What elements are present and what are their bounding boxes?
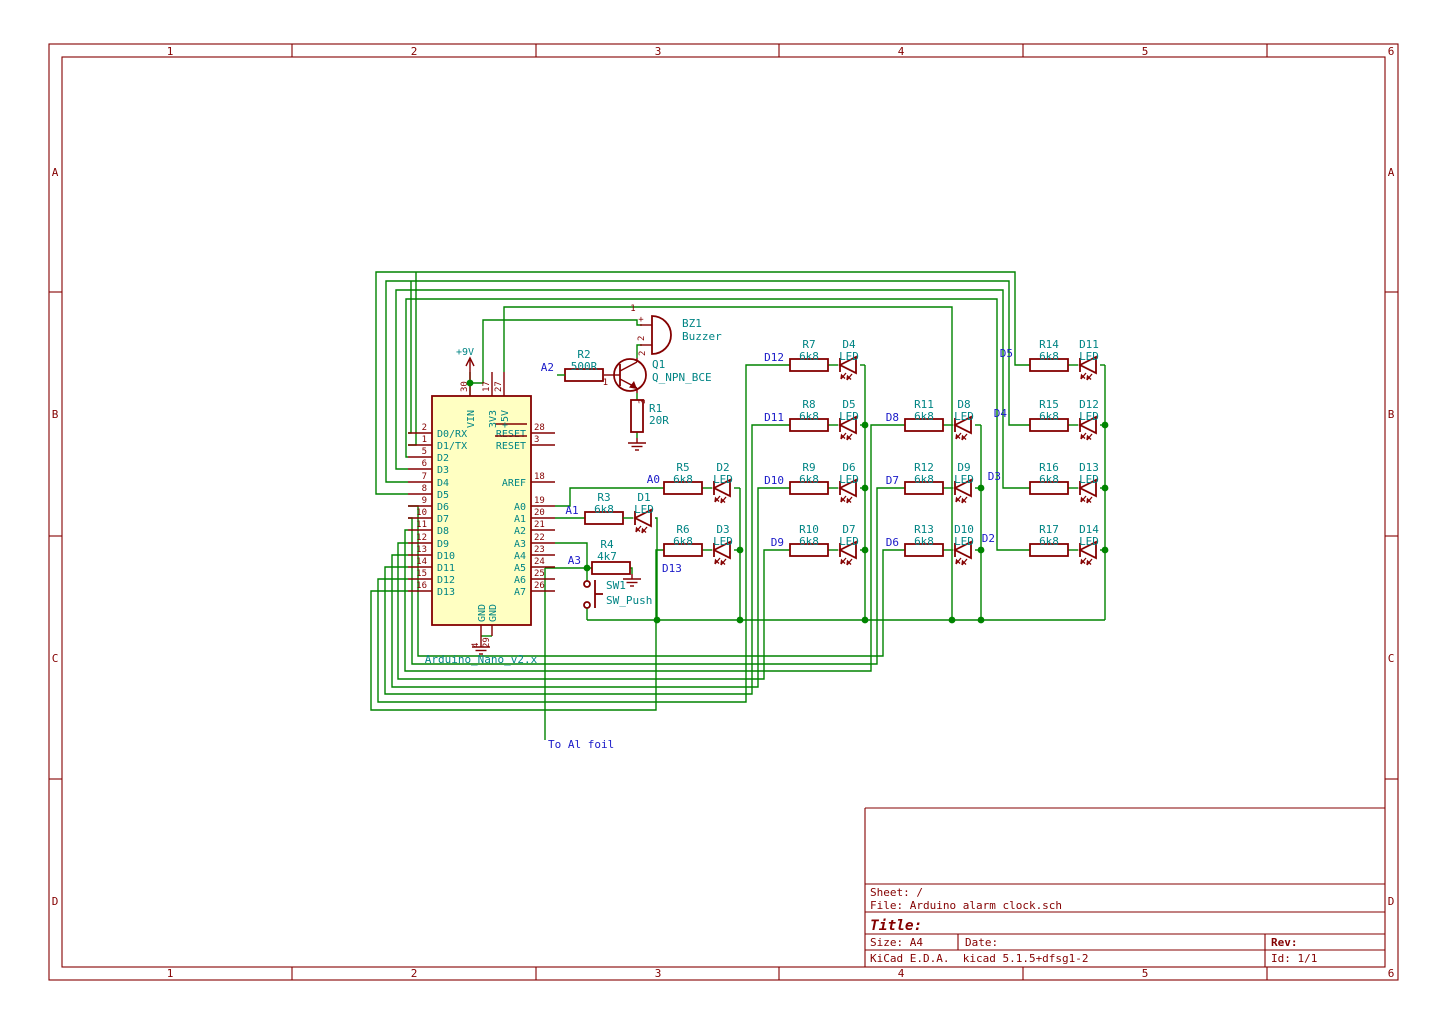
- matrix-cell-c1-r1[interactable]: R56k8D2LEDA0: [647, 461, 740, 503]
- component-value: 20R: [649, 414, 669, 427]
- pin-name: D10: [437, 551, 455, 562]
- pin-number: 18: [534, 472, 545, 482]
- frame-row-label: A: [1388, 166, 1395, 179]
- junction-dot: [978, 617, 985, 624]
- component-value: LED: [839, 350, 859, 363]
- frame-column-label: 3: [655, 45, 662, 58]
- pin-number: 21: [534, 520, 545, 530]
- pin-number: 1: [630, 304, 635, 314]
- matrix-cell-c4-r3[interactable]: R166k8D13LEDD3: [988, 461, 1105, 503]
- component-value: LED: [839, 473, 859, 486]
- schematic-sheet: 112233445566AABBCCDDSheet: /File: Arduin…: [0, 0, 1447, 1024]
- power-9v-symbol[interactable]: +9V: [456, 347, 474, 372]
- component-value: SW_Push: [606, 594, 652, 607]
- frame-column-label: 3: [655, 967, 662, 980]
- matrix-cell-c1-r2[interactable]: R66k8D3LEDD13: [662, 523, 740, 575]
- title-block: Sheet: /File: Arduino alarm clock.schTit…: [865, 808, 1385, 967]
- component-value: LED: [1079, 350, 1099, 363]
- net-label: A1: [565, 504, 578, 517]
- junction-dot: [737, 617, 744, 624]
- arduino-value: Arduino_Nano_v2.x: [425, 653, 538, 666]
- matrix-cell-c2-r4[interactable]: R106k8D7LEDD9: [771, 523, 865, 565]
- frame-column-label: 6: [1388, 45, 1395, 58]
- transistor-symbol[interactable]: 123Q1Q_NPN_BCE: [603, 351, 712, 404]
- buzzer-symbol[interactable]: 1+2BZ1Buzzer: [630, 304, 722, 354]
- pin-name: A2: [514, 526, 526, 537]
- component-value: LED: [1079, 473, 1099, 486]
- titleblock-size: Size: A4: [870, 936, 923, 949]
- pin-number: 8: [422, 484, 427, 494]
- frame-row-label: B: [52, 408, 59, 421]
- component-value: LED: [713, 473, 733, 486]
- pin-name: A0: [514, 502, 526, 513]
- frame-row-label: C: [52, 652, 59, 665]
- matrix-cell-c4-r4[interactable]: R176k8D14LEDD2: [982, 523, 1105, 565]
- component-value: 6k8: [1039, 410, 1059, 423]
- pin-number: 15: [416, 569, 427, 579]
- net-label: A0: [647, 473, 660, 486]
- pin-number: 6: [422, 459, 427, 469]
- component-value: 6k8: [673, 535, 693, 548]
- resistor-r4-switch[interactable]: R44k7A3SW1SW_Push: [568, 538, 653, 608]
- matrix-cell-c3-r1[interactable]: R116k8D8LEDD8: [886, 398, 981, 440]
- wire[interactable]: [408, 281, 411, 433]
- pin-number: 10: [416, 508, 427, 518]
- matrix-cell-c2-r3[interactable]: R96k8D6LEDD10: [764, 461, 865, 503]
- pin-number: 27: [494, 381, 504, 392]
- component-value: 6k8: [914, 410, 934, 423]
- pin-number: 14: [416, 557, 427, 567]
- junctions: [467, 380, 1109, 624]
- titleblock-sheet: Sheet: /: [870, 886, 923, 899]
- pin-name: A5: [514, 563, 526, 574]
- titleblock-rev: Rev:: [1271, 936, 1298, 949]
- pin-number: 7: [422, 472, 427, 482]
- component-value: LED: [954, 410, 974, 423]
- arduino-symbol[interactable]: 2D0/RX1D1/TX5D26D37D48D59D610D711D812D91…: [408, 372, 555, 666]
- junction-dot: [978, 485, 985, 492]
- matrix-cell-c3-r3[interactable]: R136k8D10LEDD6: [886, 523, 981, 565]
- pin-name: GND: [488, 604, 499, 622]
- net-label: D2: [982, 532, 995, 545]
- frame-column-label: 6: [1388, 967, 1395, 980]
- frame-row-label: D: [1388, 895, 1395, 908]
- frame-column-label: 1: [167, 45, 174, 58]
- pin-number: 20: [534, 508, 545, 518]
- pin-name: D8: [437, 526, 449, 537]
- pin-name: D2: [437, 453, 449, 464]
- net-label: A2: [541, 361, 554, 374]
- net-label-foil: To Al foil: [548, 738, 614, 751]
- component-value: 6k8: [594, 503, 614, 516]
- pin-name: D11: [437, 563, 455, 574]
- pin-number: 23: [534, 545, 545, 555]
- gnd-symbol[interactable]: [628, 438, 646, 450]
- matrix-cell-c2-r1[interactable]: R76k8D4LEDD12: [764, 338, 865, 380]
- pin-name: D0/RX: [437, 429, 467, 440]
- component-value: LED: [1079, 535, 1099, 548]
- resistor-r2[interactable]: R2500RA2: [541, 348, 603, 381]
- titleblock-id: Id: 1/1: [1271, 952, 1317, 965]
- junction-dot: [737, 547, 744, 554]
- pin-number: 17: [482, 381, 492, 392]
- pin-name: RESET: [496, 441, 526, 452]
- net-label: D11: [764, 411, 784, 424]
- component-value: Q_NPN_BCE: [652, 371, 712, 384]
- pin-name: D3: [437, 465, 449, 476]
- component-value: 6k8: [914, 473, 934, 486]
- titleblock-file: File: Arduino alarm clock.sch: [870, 899, 1062, 912]
- junction-dot: [862, 485, 869, 492]
- junction-dot: [862, 547, 869, 554]
- pin-name: 3V3: [488, 410, 499, 428]
- frame-column-label: 2: [411, 45, 418, 58]
- junction-dot: [1102, 422, 1109, 429]
- net-label: D13: [662, 562, 682, 575]
- titleblock-title: Title:: [870, 918, 922, 934]
- frame-column-label: 4: [898, 967, 905, 980]
- pin-name: +5V: [500, 410, 511, 428]
- pin-number: 16: [416, 581, 427, 591]
- pin-number: 22: [534, 533, 545, 543]
- component-value: LED: [1079, 410, 1099, 423]
- component-value: 6k8: [799, 410, 819, 423]
- pin-number: 26: [534, 581, 545, 591]
- pin-number: 19: [534, 496, 545, 506]
- pin-number: 9: [422, 496, 427, 506]
- net-label: D9: [771, 536, 784, 549]
- net-label: D12: [764, 351, 784, 364]
- sheet-frame: 112233445566AABBCCDD: [49, 44, 1398, 980]
- pin-number: 3: [534, 435, 539, 445]
- pin-name: D7: [437, 514, 449, 525]
- component-ref: SW1: [606, 579, 626, 592]
- pin-name: RESET: [496, 429, 526, 440]
- component-value: LED: [634, 503, 654, 516]
- junction-dot: [862, 617, 869, 624]
- junction-dot: [862, 422, 869, 429]
- pin-number: 1: [422, 435, 427, 445]
- component-value: LED: [954, 473, 974, 486]
- component-value: LED: [839, 535, 859, 548]
- net-label: D10: [764, 474, 784, 487]
- pin-name: A6: [514, 575, 526, 586]
- component-value: LED: [713, 535, 733, 548]
- switch-contact: [584, 602, 590, 608]
- net-label: D6: [886, 536, 899, 549]
- titleblock-generator: KiCad E.D.A. kicad 5.1.5+dfsg1-2: [870, 952, 1089, 965]
- frame-column-label: 2: [411, 967, 418, 980]
- frame-row-label: D: [52, 895, 59, 908]
- resistor-body[interactable]: [592, 562, 630, 574]
- net-label: D8: [886, 411, 899, 424]
- pin-number: 25: [534, 569, 545, 579]
- matrix-cell-c4-r2[interactable]: R156k8D12LEDD4: [994, 398, 1105, 440]
- foil-label[interactable]: To Al foil: [548, 738, 614, 751]
- frame-column-label: 5: [1142, 967, 1149, 980]
- matrix-cell-c2-r2[interactable]: R86k8D5LEDD11: [764, 398, 865, 440]
- pin-name: AREF: [502, 478, 526, 489]
- wire[interactable]: [470, 320, 642, 383]
- power-9v-label: +9V: [456, 347, 474, 358]
- pin-number: 11: [416, 520, 427, 530]
- net-label: D7: [886, 474, 899, 487]
- switch-contact: [584, 581, 590, 587]
- component-value: 6k8: [799, 535, 819, 548]
- frame-row-label: B: [1388, 408, 1395, 421]
- resistor-r1[interactable]: R120R: [628, 400, 669, 450]
- pin-name: D9: [437, 539, 449, 550]
- pin-number: 28: [534, 423, 545, 433]
- net-label: D5: [1000, 347, 1013, 360]
- net-label: D3: [988, 470, 1001, 483]
- pin-number: 2: [638, 351, 648, 356]
- pin-name: GND: [477, 604, 488, 622]
- junction-dot: [654, 617, 661, 624]
- pin-name: D12: [437, 575, 455, 586]
- component-value: 6k8: [1039, 350, 1059, 363]
- pin-number: 13: [416, 545, 427, 555]
- component-value: 6k8: [799, 473, 819, 486]
- pin-number: 24: [534, 557, 545, 567]
- junction-dot: [1102, 485, 1109, 492]
- pin-name: D5: [437, 490, 449, 501]
- component-value: 4k7: [597, 550, 617, 563]
- net-label: A3: [568, 554, 581, 567]
- pin-name: A7: [514, 587, 526, 598]
- component-value: LED: [839, 410, 859, 423]
- component-value: 500R: [571, 360, 598, 373]
- frame-column-label: 5: [1142, 45, 1149, 58]
- pin-name: VIN: [466, 410, 477, 428]
- pin-name: A4: [514, 551, 526, 562]
- component-value: Buzzer: [682, 330, 722, 343]
- component-value: 6k8: [799, 350, 819, 363]
- net-label: D4: [994, 407, 1008, 420]
- pin-number: 2: [637, 336, 647, 341]
- resistor-r3-led-d1[interactable]: R36k8D1LEDA1: [565, 491, 654, 533]
- component-ref: Q1: [652, 358, 665, 371]
- frame-column-label: 4: [898, 45, 905, 58]
- component-value: 6k8: [1039, 535, 1059, 548]
- pin-name: D6: [437, 502, 449, 513]
- pin-number: 12: [416, 533, 427, 543]
- junction-dot: [584, 565, 591, 572]
- frame-row-label: A: [52, 166, 59, 179]
- component-value: LED: [954, 535, 974, 548]
- matrix-cell-c3-r2[interactable]: R126k8D9LEDD7: [886, 461, 981, 503]
- pin-number: 5: [422, 447, 427, 457]
- component-value: 6k8: [1039, 473, 1059, 486]
- pin-name: D4: [437, 478, 449, 489]
- junction-dot: [1102, 547, 1109, 554]
- pin-name: A1: [514, 514, 526, 525]
- junction-dot: [949, 617, 956, 624]
- pin-name: D1/TX: [437, 441, 467, 452]
- junction-dot: [978, 547, 985, 554]
- titleblock-date: Date:: [965, 936, 998, 949]
- junction-dot: [467, 380, 474, 387]
- component-value: 6k8: [914, 535, 934, 548]
- frame-row-label: C: [1388, 652, 1395, 665]
- component-value: 6k8: [673, 473, 693, 486]
- buzzer-plus: +: [638, 315, 644, 325]
- pin-name: D13: [437, 587, 455, 598]
- pin-name: A3: [514, 539, 526, 550]
- frame-column-label: 1: [167, 967, 174, 980]
- component-ref: BZ1: [682, 317, 702, 330]
- wire[interactable]: [408, 272, 416, 445]
- pin-number: 2: [422, 423, 427, 433]
